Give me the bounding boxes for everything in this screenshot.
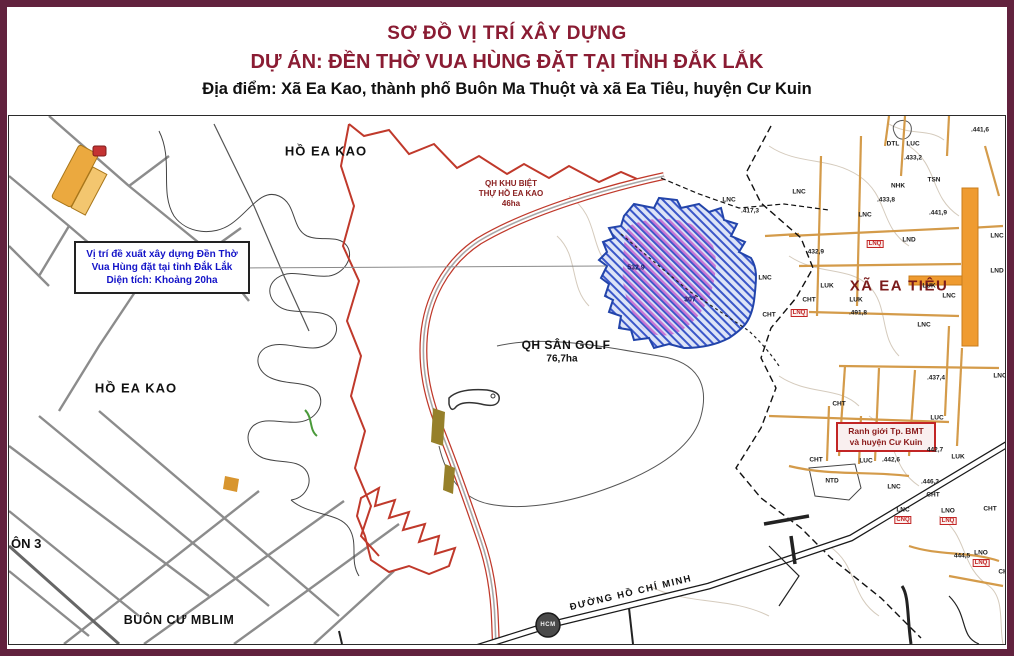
site-code: 307: [684, 297, 696, 304]
land-use-label: LNC: [993, 373, 1006, 380]
label-qh-san-golf: QH SÂN GOLF: [522, 338, 611, 352]
land-use-label: CHT: [832, 401, 845, 408]
land-use-label: LUK: [820, 283, 833, 290]
title-block: SƠ ĐỒ VỊ TRÍ XÂY DỰNG DỰ ÁN: ĐỀN THỜ VUA…: [7, 7, 1007, 115]
land-use-label: LNC: [792, 189, 805, 196]
site-annotation-box: Vị trí đề xuất xây dựng Đền Thờ Vua Hùng…: [74, 241, 250, 294]
poi-icon: [93, 146, 106, 156]
land-use-label: 444,5: [954, 553, 970, 560]
boundary-note-line2: và huyện Cư Kuin: [839, 437, 933, 448]
land-use-label: LUK: [922, 283, 935, 290]
land-use-label: LUK: [849, 297, 862, 304]
land-use-label: NHK: [891, 183, 905, 190]
annotation-line1: Vị trí đề xuất xây dựng Đền Thờ: [78, 248, 246, 261]
contour-lines: [557, 124, 1003, 644]
land-use-label: LNC: [858, 212, 871, 219]
land-use-label: LUC: [906, 141, 919, 148]
golf-area-outline: [439, 341, 861, 506]
land-use-label: LUK: [951, 454, 964, 461]
land-use-label: .433,2: [904, 155, 922, 162]
land-use-label: CHT: [802, 297, 815, 304]
land-use-label: LNQ: [940, 517, 957, 525]
land-use-label: TSN: [928, 177, 941, 184]
land-use-label: LNC: [942, 293, 955, 300]
land-use-label: LNQ: [973, 559, 990, 567]
land-use-label: CHT: [926, 492, 939, 499]
land-use-label: .491,8: [849, 310, 867, 317]
land-use-label: LUC: [859, 458, 872, 465]
land-use-label: .437,4: [927, 375, 945, 382]
label-qh-biet-thu-l3: 46ha: [479, 199, 544, 209]
plan-sheet: SƠ ĐỒ VỊ TRÍ XÂY DỰNG DỰ ÁN: ĐỀN THỜ VUA…: [0, 0, 1014, 656]
proposed-site-area: [599, 198, 779, 366]
label-ho-ea-kao-top: HỒ EA KAO: [285, 144, 367, 159]
site-elevation: 532,9: [627, 265, 645, 272]
land-use-label: LNC: [722, 197, 735, 204]
land-use-label: LNO: [974, 550, 988, 557]
land-use-label: CNQ: [894, 516, 911, 524]
annotation-line3: Diện tích: Khoảng 20ha: [78, 274, 246, 287]
land-use-label: CHT: [998, 569, 1006, 576]
land-use-label: LNC: [887, 484, 900, 491]
land-use-label: LNC: [896, 507, 909, 514]
label-qh-san-golf-area: 76,7ha: [546, 354, 577, 365]
land-use-label: LNQ: [791, 309, 808, 317]
boundary-note-box: Ranh giới Tp. BMT và huyện Cư Kuin: [836, 422, 936, 452]
project-title: DỰ ÁN: ĐỀN THỜ VUA HÙNG ĐẶT TẠI TỈNH ĐẮK…: [251, 51, 764, 74]
annotation-line2: Vua Hùng đặt tại tỉnh Đắk Lắk: [78, 261, 246, 274]
land-use-label: CHT: [762, 312, 775, 319]
land-use-label: LNC: [917, 322, 930, 329]
label-ho-ea-kao-left: HỒ EA KAO: [95, 381, 177, 396]
streets-buon-cu-mblim: [9, 411, 399, 644]
page-title: SƠ ĐỒ VỊ TRÍ XÂY DỰNG: [387, 23, 627, 45]
location-subtitle: Địa điểm: Xã Ea Kao, thành phố Buôn Ma T…: [202, 80, 811, 99]
hcm-badge-text: HCM: [540, 622, 555, 628]
land-patches: [51, 144, 455, 494]
land-use-label: .441,6: [971, 127, 989, 134]
label-thon-3: ÔN 3: [11, 536, 41, 551]
annotation-leader-line: [242, 266, 606, 268]
land-use-label: 442,7: [927, 447, 943, 454]
land-use-label: LNC: [758, 275, 771, 282]
land-use-label: .446,3: [921, 479, 939, 486]
land-use-label: LNO: [941, 508, 955, 515]
map-canvas: HỒ EA KAO HỒ EA KAO QH KHU BIỆT THỰ HỒ E…: [8, 115, 1006, 645]
land-use-label: .433,8: [877, 197, 895, 204]
label-qh-biet-thu-l2: THỰ HỒ EA KAO: [479, 189, 544, 199]
land-use-label: .442,6: [882, 457, 900, 464]
label-qh-biet-thu: QH KHU BIỆT THỰ HỒ EA KAO 46ha: [479, 179, 544, 209]
land-use-label: LND: [902, 237, 915, 244]
land-use-label: .441,9: [929, 210, 947, 217]
land-use-label: NTD: [825, 478, 838, 485]
land-use-label: LNQ: [867, 240, 884, 248]
land-use-label: .417,3: [741, 208, 759, 215]
land-use-label: LNC: [990, 233, 1003, 240]
label-qh-biet-thu-l1: QH KHU BIỆT: [479, 179, 544, 189]
land-use-label: .432,9: [806, 249, 824, 256]
land-use-label: DTL: [887, 141, 900, 148]
boundary-note-line1: Ranh giới Tp. BMT: [839, 426, 933, 437]
land-use-label: LUC: [930, 415, 943, 422]
land-use-label: CHT: [809, 457, 822, 464]
land-use-label: LND: [990, 268, 1003, 275]
label-buon-cu-mblim: BUÔN CƯ MBLIM: [124, 613, 235, 627]
land-use-label: CHT: [983, 506, 996, 513]
